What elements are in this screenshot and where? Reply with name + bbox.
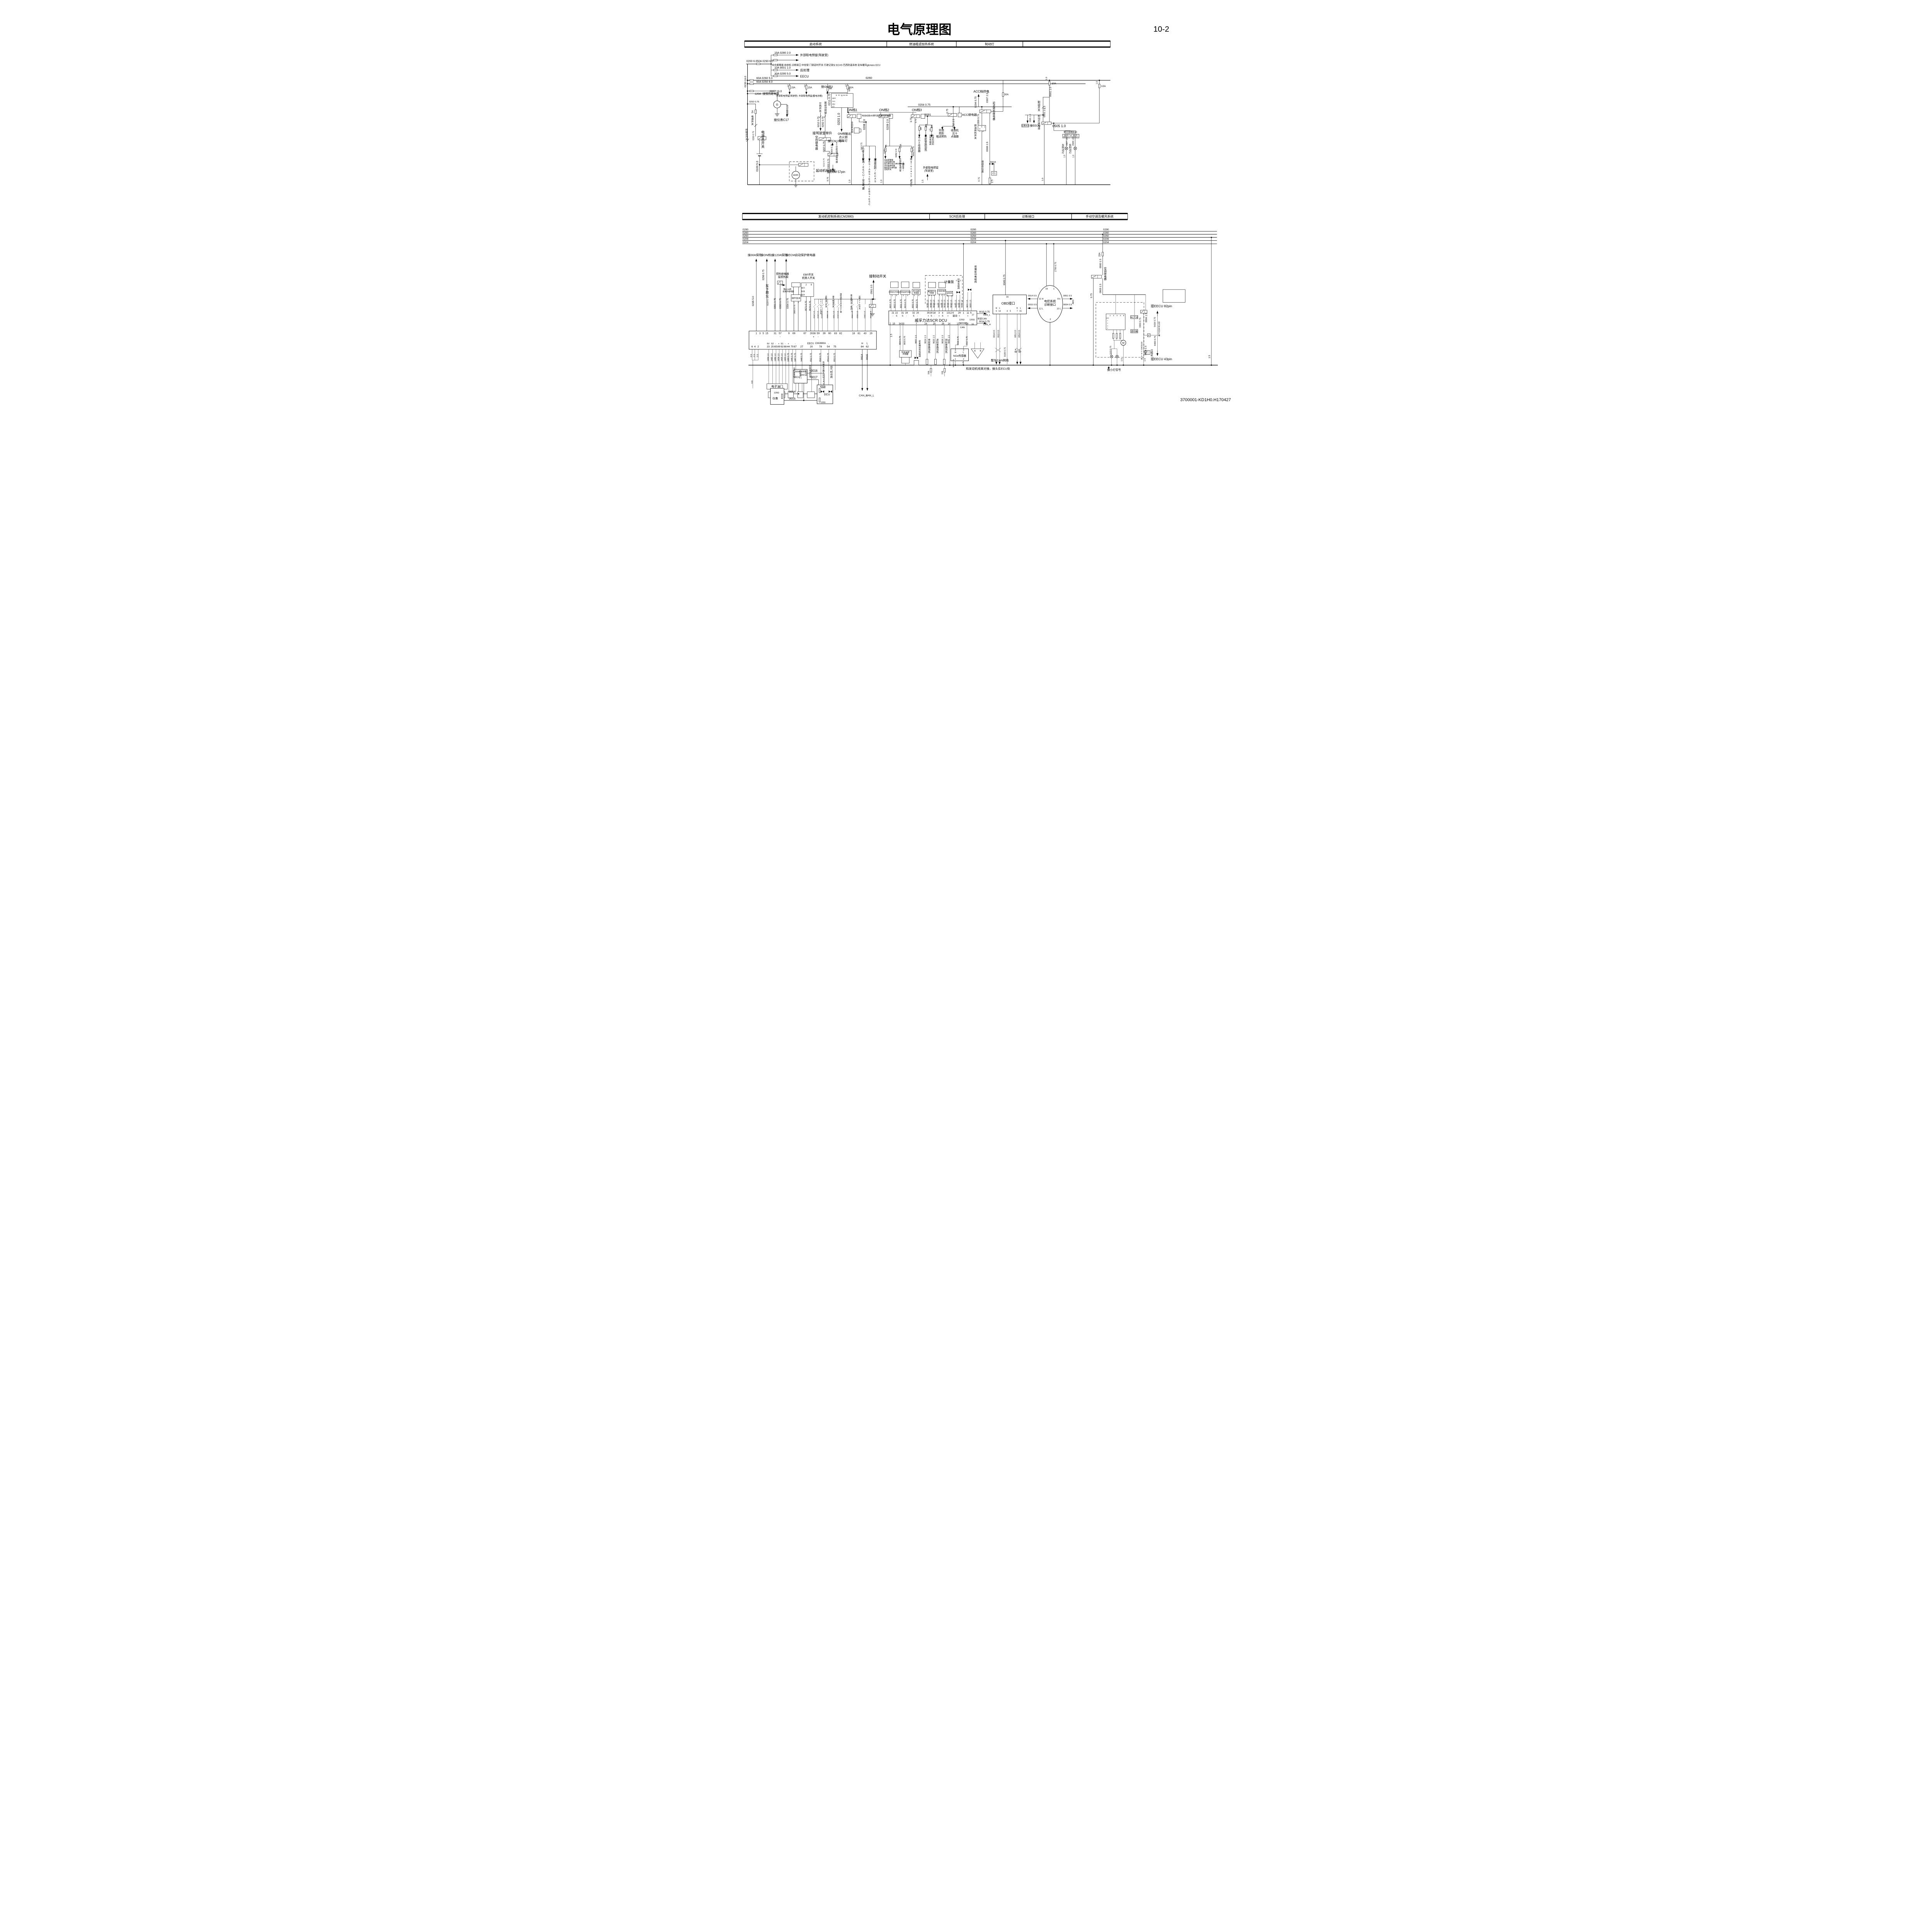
- diagram-label: 接制动开关: [869, 274, 886, 278]
- diagram-label: 24: [924, 322, 927, 325]
- diagram-label: 43: [864, 332, 867, 335]
- diagram-label: 10 L: [1057, 308, 1061, 310]
- diagram-label: 0211 0.75: [828, 94, 831, 105]
- diagram-label: 15A: [808, 87, 813, 89]
- diagram-label: 15A 0280 2.0: [774, 51, 791, 54]
- diagram-label: 9091 0.75: [952, 359, 954, 367]
- diagram-label: 1.0: [1042, 178, 1044, 181]
- diagram-label: 0556 0.5: [857, 311, 859, 318]
- diagram-label: 0047 0.5: [813, 311, 816, 318]
- diagram-label: 120Ω: [969, 319, 975, 321]
- diagram-label: 3: [1116, 315, 1117, 317]
- diagram-label: 0298 0.75: [762, 269, 765, 280]
- relay-box: [911, 115, 920, 118]
- component-box: [1119, 334, 1121, 339]
- diagram-label: 加热电磁阀: [929, 134, 932, 146]
- diagram-label: 右制动灯: [1069, 143, 1071, 154]
- diagram-label: 0507 1.0: [1066, 138, 1068, 146]
- diagram-label: 接组合仪表: [981, 160, 984, 174]
- page-number: 10-2: [1153, 25, 1169, 34]
- diagram-label: -: [795, 343, 796, 345]
- diagram-label: 120A: [755, 92, 761, 95]
- diagram-label: 0508 1.0: [1072, 138, 1075, 146]
- diagram-label: -: [818, 335, 818, 338]
- diagram-label: 0290: [1103, 228, 1109, 231]
- diagram-label: 9003 1.0: [938, 300, 940, 308]
- diagram-label: 9502 0.75: [913, 146, 915, 157]
- component-box: [1116, 334, 1117, 339]
- diagram-label: 2.5: [991, 179, 994, 183]
- diagram-label: 0051 0.5: [1014, 330, 1017, 338]
- section-header: 燃油粗滤加热系统: [909, 42, 934, 46]
- diagram-label: 4.0: [751, 381, 753, 384]
- diagram-label: 26: [810, 332, 813, 335]
- diagram-label: 10A: [931, 125, 934, 129]
- diagram-label: 9024 1.5: [925, 335, 927, 344]
- diagram-label: 空挡开关: [819, 102, 821, 112]
- component-box: [781, 394, 782, 398]
- diagram-label: 0702 2.5: [952, 119, 955, 128]
- fuse-icon: [756, 63, 760, 65]
- diagram-label: 10A: [942, 371, 944, 374]
- section-header: 启动系统: [810, 42, 822, 46]
- diagram-label: 空档开关: [884, 168, 891, 171]
- diagram-label: 1.5: [845, 84, 847, 87]
- diagram-label: 0100 0.75: [1004, 347, 1007, 357]
- diagram-label: 9012 1.5: [951, 300, 953, 308]
- diagram-label: 8 k: [1058, 298, 1061, 300]
- component-box: [929, 282, 936, 288]
- diagram-label: 空调继电器: [1104, 267, 1107, 281]
- diagram-label: 2: [889, 322, 891, 325]
- diagram-label: 6: [952, 311, 954, 314]
- diagram-label: 接综合报警器4pin: [1064, 131, 1078, 133]
- diagram-label: 0054 0.5: [1063, 304, 1072, 306]
- fuse-icon: [750, 83, 753, 85]
- diagram-label: 9015 1.0: [944, 300, 946, 308]
- diagram-label: 0015 0.5: [997, 330, 1000, 338]
- diagram-label: CAN: [960, 327, 965, 329]
- diagram-label: 压力开关MP端: [1158, 321, 1160, 337]
- diagram-label: 0290: [743, 228, 748, 231]
- diagram-label: 0501 1.0: [1029, 114, 1032, 122]
- diagram-label: 7: [916, 322, 917, 325]
- component-label: M: [1122, 342, 1124, 344]
- diagram-label: 34: [899, 322, 901, 325]
- diagram-label: 12: [951, 295, 952, 297]
- diagram-label: 1.0: [1073, 155, 1075, 157]
- diagram-label: 2.5: [753, 354, 756, 357]
- diagram-label: 5: [1123, 315, 1124, 317]
- diagram-label: +: [813, 335, 815, 338]
- diagram-label: 1485 1.0: [771, 354, 773, 361]
- diagram-label: 0208 2.0: [863, 119, 866, 130]
- page-title: 电气原理图: [887, 23, 952, 37]
- diagram-label: 0504 0.5: [870, 311, 872, 318]
- component-box: [819, 398, 820, 402]
- diagram-label: 32: [912, 311, 915, 314]
- diagram-label: 120Ω: [959, 319, 965, 321]
- diagram-label: 尿素温度传感器: [900, 291, 910, 293]
- diagram-label: 0303 0.75: [779, 298, 782, 309]
- fuse-icon: [774, 75, 777, 77]
- diagram-label: 机械总开关: [745, 128, 748, 141]
- diagram-label: 0501 1.0: [1043, 108, 1046, 117]
- diagram-label: 1.5: [929, 129, 931, 131]
- diagram-label: 1448 0.75: [801, 353, 803, 362]
- schematic-page: 电气原理图 10-2 3700001-KD1H0.H170427 G起动机M启动…: [665, 0, 1267, 426]
- fuse-icon: [755, 110, 757, 114]
- fuse-icon: [918, 126, 920, 130]
- component-box: [913, 282, 920, 288]
- diagram-label: 9005 1.5: [969, 300, 972, 308]
- diagram-label: 0.75: [911, 179, 913, 183]
- diagram-label: 15A: [1099, 252, 1101, 257]
- diagram-label: 27: [972, 314, 974, 316]
- diagram-label: 4: [955, 349, 956, 351]
- diagram-label: 18: [933, 311, 935, 314]
- diagram-label: 0555 0.5: [827, 311, 829, 318]
- diagram-label: 外部取电预留(驾驶室): [800, 53, 828, 57]
- diagram-label: 12: [949, 311, 952, 314]
- wiring-diagram: 电气原理图 10-2 3700001-KD1H0.H170427 G起动机M启动…: [665, 0, 1267, 426]
- diagram-label: 威孚力达SCR DCU: [915, 318, 947, 323]
- diagram-label: 0502 1.0: [1049, 87, 1052, 97]
- diagram-label: S: [913, 315, 915, 317]
- diagram-label: 30: [930, 311, 933, 314]
- fuse-icon: [750, 90, 753, 92]
- diagram-label: 120Ω: [800, 374, 805, 376]
- diagram-label: 30A 0295 5.0: [774, 72, 791, 75]
- diagram-label: 78: [819, 345, 822, 348]
- diagram-label: 15: [1045, 288, 1048, 290]
- diagram-label: 1487 0.75: [794, 353, 796, 362]
- diagram-label: 制动灯继电器: [1038, 114, 1041, 130]
- diagram-label: 制动开关: [1038, 100, 1041, 112]
- diagram-label: 4: [942, 311, 944, 314]
- diagram-label: 0204 0.75: [918, 103, 930, 106]
- component-box: [792, 282, 800, 287]
- diagram-label: S: [930, 315, 932, 317]
- diagram-label: 5A 0.75: [861, 143, 863, 150]
- diagram-label: 0049 0.75: [1003, 274, 1006, 285]
- diagram-label: 5A: [920, 127, 922, 130]
- component-label: 起动机: [793, 174, 799, 177]
- diagram-label: 8: [934, 295, 934, 296]
- diagram-label: 0308 2.5: [986, 141, 989, 151]
- diagram-label: 回料管路加热: [945, 339, 947, 354]
- diagram-label: 59: [817, 332, 820, 335]
- diagram-label: 0260: [743, 231, 748, 234]
- diagram-label: 1: [984, 126, 985, 128]
- diagram-label: 92: [781, 345, 784, 348]
- diagram-label: P: [1148, 335, 1150, 337]
- diagram-label: 电控系统: [1044, 299, 1056, 303]
- diagram-label: 动力: [801, 287, 805, 289]
- relay-box: [799, 163, 808, 166]
- diagram-label: 0483 0.5: [864, 311, 866, 318]
- diagram-label: 0260: [1103, 231, 1109, 234]
- diagram-label: 19: [905, 311, 908, 314]
- component-box: [989, 178, 991, 184]
- diagram-label: CM2880A: [815, 342, 827, 345]
- diagram-label: 0201: [849, 87, 851, 92]
- diagram-label: 31: [774, 332, 777, 335]
- diagram-label: 0045 0.5: [817, 311, 820, 318]
- diagram-label: 0014 0.5: [1028, 295, 1036, 297]
- diagram-label: 82: [839, 332, 842, 335]
- diagram-label: 0560 0.75: [820, 353, 822, 362]
- diagram-label: 120Ω: [774, 392, 779, 394]
- diagram-label: 整车CAN网络: [991, 358, 1009, 362]
- diagram-label: 2.0: [787, 85, 789, 87]
- diagram-label: H: [861, 342, 863, 345]
- diagram-label: Ig: [841, 94, 842, 97]
- section-header: 诊断接口: [1022, 214, 1034, 218]
- diagram-label: 喷嘴驱动电磁阀: [975, 265, 977, 284]
- diagram-label: CAN_H: [983, 324, 991, 326]
- diagram-label: 0017 0.75: [966, 336, 968, 345]
- diagram-label: 2.0: [804, 85, 806, 87]
- diagram-label: 1.5: [922, 180, 924, 183]
- diagram-label: 标准: [801, 290, 805, 293]
- diagram-label: 0.75: [978, 177, 980, 182]
- diagram-label: 接ECM 09pin: [828, 140, 844, 143]
- diagram-label: L: [1020, 307, 1021, 310]
- diagram-label: CAN_L: [866, 394, 874, 397]
- diagram-label: B: [980, 350, 981, 352]
- diagram-label: 9: [788, 332, 790, 335]
- diagram-label: 0.75: [962, 361, 964, 365]
- diagram-label: S: [902, 315, 903, 317]
- diagram-label: 0.75: [827, 177, 829, 181]
- diagram-label: 初滤预热继电器: [993, 101, 995, 121]
- diagram-label: 0205 1.0: [786, 105, 789, 115]
- diagram-label: 10A: [1101, 85, 1106, 88]
- diagram-label: 0570 0.75: [809, 301, 811, 311]
- fuse-icon: [899, 148, 900, 152]
- diagram-label: 75: [833, 345, 837, 348]
- diagram-label: 14: [948, 322, 951, 325]
- diagram-label: 20: [916, 311, 919, 314]
- diagram-label: 3: [939, 311, 940, 314]
- diagram-label: 1.5: [1121, 358, 1123, 361]
- diagram-label: 20: [810, 345, 813, 348]
- diagram-label: K: [1017, 307, 1018, 310]
- diagram-label: 远程油门开关: [825, 296, 827, 308]
- diagram-label: 9032 0.75: [912, 299, 914, 308]
- component-box: [921, 114, 925, 118]
- diagram-label: 60A 0260 5.0: [756, 77, 772, 80]
- diagram-label: ON档输出: [838, 132, 851, 136]
- diagram-label: L: [999, 307, 1000, 310]
- diagram-label: 0905 1.5: [1099, 284, 1102, 293]
- diagram-label: 0298 0.75: [862, 150, 865, 158]
- diagram-label: 压缩机: [1151, 349, 1153, 357]
- diagram-label: 0290: [970, 228, 976, 231]
- relay-box: [847, 115, 855, 118]
- diagram-label: S: [942, 315, 943, 317]
- diagram-label: 9001 1.5: [961, 300, 963, 308]
- diagram-label: 0.75: [884, 149, 886, 153]
- diagram-label: 副起动按钮: [825, 101, 827, 114]
- diagram-label: 0051 0.5: [1063, 295, 1072, 297]
- diagram-label: 0250: [970, 235, 976, 237]
- fuse-icon: [774, 69, 777, 71]
- diagram-label: 1404 1.0: [778, 354, 780, 361]
- diagram-label: R: [838, 94, 840, 97]
- diagram-label: L: [867, 342, 868, 345]
- diagram-label: 喷射管路加热: [928, 339, 930, 354]
- diagram-label: 及进料回料: [932, 134, 934, 146]
- diagram-label: 1486 1.0: [774, 354, 777, 361]
- diagram-label: 进料管路加热: [936, 339, 939, 354]
- diagram-label: 0204: [743, 241, 748, 244]
- diagram-label: 0293 0.75: [753, 131, 755, 140]
- diagram-label: 0553 0.75: [834, 353, 836, 362]
- diagram-label: 5V: [767, 343, 770, 345]
- diagram-label: 接ECM启动保护继电器: [786, 253, 816, 257]
- diagram-label: 29: [958, 311, 961, 314]
- diagram-label: 通讯诊断: [960, 322, 967, 325]
- diagram-label: 4: [1107, 328, 1108, 329]
- diagram-label: ON档1: [847, 108, 857, 112]
- diagram-label: 1445 0.75: [791, 353, 793, 362]
- diagram-label: 0900 1.5: [1099, 259, 1102, 268]
- diagram-label: S2: [771, 343, 774, 345]
- diagram-label: 0903 0.75: [1139, 318, 1142, 328]
- diagram-label: 54: [827, 345, 830, 348]
- diagram-label: 0213 0.75: [823, 158, 825, 167]
- diagram-label: 排气制动开关: [832, 296, 834, 308]
- diagram-label: 9031 0.75: [900, 299, 903, 308]
- diagram-label: 1.0: [1096, 81, 1098, 84]
- diagram-label: 60: [828, 332, 832, 335]
- diagram-label: 1.5: [890, 334, 893, 337]
- diagram-label: 27: [800, 345, 803, 348]
- diagram-label: 62: [866, 345, 869, 348]
- component-box: [926, 359, 928, 364]
- section-header: SCR后处理: [949, 214, 965, 218]
- diagram-label: 5A: [885, 145, 887, 147]
- diagram-label: 燃油预热开关: [974, 124, 977, 140]
- diagram-label: 0207 0.75: [823, 141, 825, 152]
- diagram-label: 2: [1113, 315, 1114, 317]
- diagram-label: 88: [784, 345, 787, 348]
- diagram-label: 1488 0.75: [787, 353, 790, 362]
- diagram-label: OFF: [832, 97, 836, 100]
- diagram-label: 2: [798, 301, 799, 304]
- diagram-label: 0016: [811, 369, 818, 373]
- diagram-label: 22: [895, 311, 898, 314]
- diagram-label: 0292 0.75: [749, 101, 759, 103]
- fuse-icon: [1099, 84, 1100, 88]
- diagram-label: 23: [767, 345, 770, 348]
- component-box: [935, 359, 937, 364]
- diagram-label: 4: [754, 345, 756, 348]
- diagram-label: 0301 0.75: [774, 298, 777, 309]
- diagram-label: 0212 0.75: [817, 116, 820, 127]
- diagram-label: 0.75: [910, 117, 913, 123]
- diagram-label: 21: [891, 311, 894, 314]
- diagram-label: ON档2: [879, 108, 889, 112]
- relay-box: [1042, 122, 1051, 124]
- diagram-label: S: [896, 315, 897, 317]
- section-header: 制动灯: [985, 42, 994, 46]
- diagram-label: Acc: [843, 94, 846, 96]
- diagram-label: 0230 16.0: [744, 76, 747, 87]
- diagram-label: 10A: [1052, 82, 1056, 85]
- diagram-label: 2: [806, 284, 807, 286]
- diagram-label: 电源开关: [751, 115, 754, 126]
- diagram-label: 0434 0.75: [1154, 317, 1156, 327]
- component-box: [819, 388, 820, 393]
- diagram-label: ACC继电器: [962, 113, 977, 117]
- diagram-label: 33: [901, 322, 904, 325]
- section-header: 手动空调及暖风系统: [1086, 214, 1114, 218]
- diagram-label: 84: [861, 345, 864, 348]
- diagram-label: CAN_L: [983, 314, 990, 316]
- diagram-label: 18: [852, 332, 855, 335]
- diagram-label: 1403 1.0: [784, 354, 786, 361]
- diagram-label: 车下熄火: [765, 284, 769, 298]
- diagram-label: 尿素液位传感器: [889, 291, 900, 293]
- diagram-label: 电源总开关: [761, 130, 765, 149]
- component-box: [1163, 289, 1185, 302]
- diagram-label: 2: [1050, 318, 1051, 321]
- diagram-label: 9018 1.0: [933, 300, 935, 308]
- diagram-label: 0204 0.75: [975, 96, 977, 108]
- diagram-label: 0014: [861, 354, 864, 360]
- diagram-label: 4: [1120, 315, 1121, 317]
- diagram-label: 9091: [925, 113, 931, 116]
- diagram-label: 2.5: [757, 354, 759, 357]
- diagram-label: 120Ω: [821, 386, 826, 389]
- diagram-label: 11: [967, 311, 969, 314]
- diagram-label: 0483 0.75: [1154, 336, 1156, 346]
- diagram-label: 9034 0.75: [899, 336, 901, 345]
- diagram-label: 0204: [1103, 241, 1109, 244]
- diagram-label: 87: [794, 345, 797, 348]
- diagram-label: 15A: [900, 144, 902, 148]
- diagram-label: H: [954, 352, 956, 354]
- diagram-label: -: [893, 315, 893, 317]
- diagram-label: 9029 1.5: [958, 300, 961, 308]
- diagram-label: 电子油门: [771, 385, 783, 388]
- diagram-label: 0.75: [1090, 293, 1093, 298]
- diagram-label: 点火锁: [839, 135, 848, 139]
- doc-number: 3700001-KD1H0.H170427: [1180, 398, 1231, 402]
- diagram-label: -: [917, 315, 918, 317]
- diagram-label: 60A 0250 8.0: [756, 80, 772, 83]
- diagram-label: 5A: [829, 87, 832, 90]
- diagram-label: 0904 1.5: [1145, 313, 1148, 322]
- diagram-label: 9019 0.75: [904, 299, 906, 308]
- diagram-label: 9006 1.5: [955, 300, 957, 308]
- diagram-label: 喷射管路加热: [925, 135, 927, 152]
- diagram-label: 0015: [789, 397, 796, 400]
- diagram-label: 1405 1.0: [781, 354, 783, 361]
- diagram-label: 0554 0.75: [827, 353, 830, 362]
- fuse-icon: [1002, 93, 1004, 97]
- diagram-label: 16: [1006, 296, 1009, 298]
- diagram-label: 9011 1.5: [966, 300, 969, 308]
- component-box: [901, 282, 909, 288]
- diagram-label: 3: [963, 349, 964, 351]
- diagram-label: 1: [755, 332, 757, 335]
- diagram-label: 0.75: [946, 109, 949, 114]
- relay-box: [1140, 310, 1147, 313]
